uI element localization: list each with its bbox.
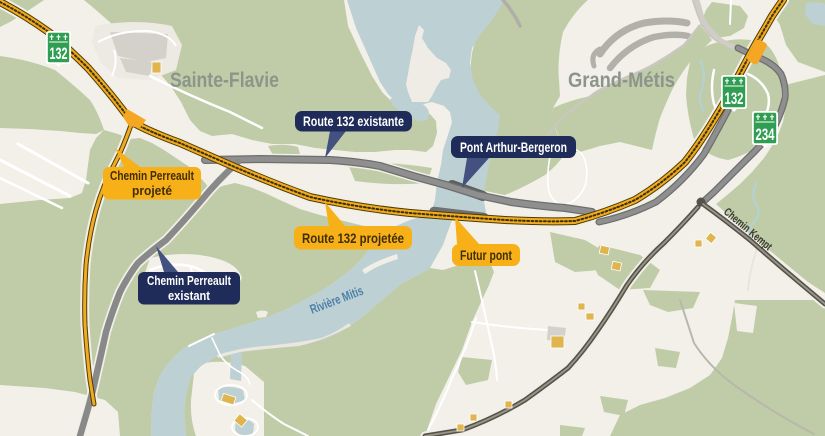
svg-text:Chemin Perreault: Chemin Perreault [147, 273, 232, 288]
svg-text:Pont Arthur-Bergeron: Pont Arthur-Bergeron [460, 139, 567, 155]
svg-text:Grand-Métis: Grand-Métis [568, 69, 675, 92]
svg-text:Sainte-Flavie: Sainte-Flavie [170, 69, 279, 92]
svg-text:Route 132 projetée: Route 132 projetée [302, 230, 404, 246]
svg-text:projeté: projeté [132, 183, 172, 198]
svg-text:132: 132 [50, 44, 68, 63]
svg-text:Futur pont: Futur pont [460, 247, 512, 263]
svg-text:234: 234 [756, 125, 775, 144]
svg-text:Chemin Perreault: Chemin Perreault [110, 168, 195, 183]
svg-text:Route 132 existante: Route 132 existante [303, 113, 404, 129]
svg-text:existant: existant [168, 288, 211, 303]
svg-text:132: 132 [725, 89, 744, 108]
